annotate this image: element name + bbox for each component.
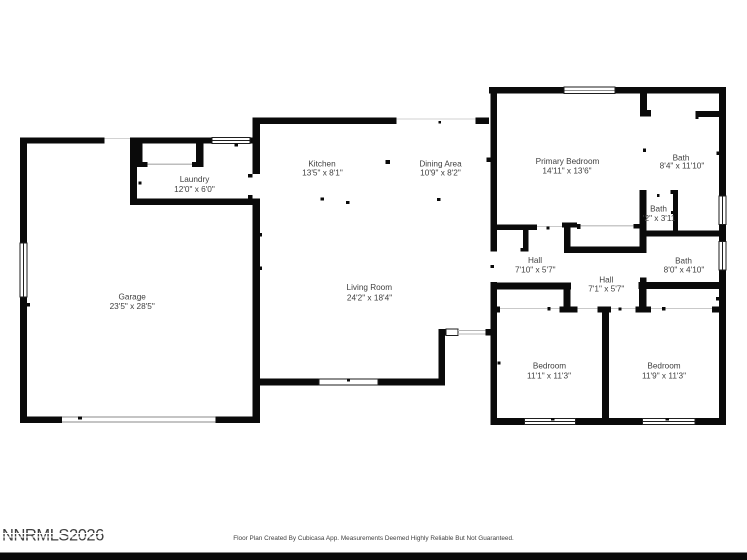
svg-text:Hall: Hall bbox=[599, 276, 613, 285]
svg-text:Primary Bedroom: Primary Bedroom bbox=[536, 157, 600, 166]
svg-text:10'9" x 8'2": 10'9" x 8'2" bbox=[420, 169, 461, 178]
svg-text:14'11" x 13'6": 14'11" x 13'6" bbox=[542, 167, 591, 176]
svg-text:NNRMLS2026: NNRMLS2026 bbox=[2, 527, 104, 545]
svg-text:11'1" x 11'3": 11'1" x 11'3" bbox=[527, 371, 571, 380]
svg-text:Bath: Bath bbox=[650, 204, 667, 213]
svg-text:24'2" x 18'4": 24'2" x 18'4" bbox=[347, 293, 392, 302]
svg-text:Hall: Hall bbox=[528, 256, 542, 265]
svg-text:8'4" x 11'10": 8'4" x 11'10" bbox=[660, 162, 705, 171]
svg-text:Kitchen: Kitchen bbox=[308, 159, 336, 168]
svg-text:7'10" x 5'7": 7'10" x 5'7" bbox=[515, 265, 556, 274]
svg-text:Dining Area: Dining Area bbox=[419, 159, 462, 168]
svg-text:'2" x 3'11: '2" x 3'11 bbox=[643, 214, 676, 223]
svg-text:Floor Plan Created By Cubicasa: Floor Plan Created By Cubicasa App. Meas… bbox=[233, 535, 514, 542]
svg-text:Bedroom: Bedroom bbox=[533, 361, 566, 370]
svg-text:Garage: Garage bbox=[119, 292, 147, 301]
svg-text:Laundry: Laundry bbox=[180, 175, 210, 184]
svg-text:Bath: Bath bbox=[675, 256, 692, 265]
svg-text:23'5" x 28'5": 23'5" x 28'5" bbox=[110, 302, 155, 311]
svg-text:12'0" x 6'0": 12'0" x 6'0" bbox=[174, 185, 215, 194]
svg-text:7'1" x 5'7": 7'1" x 5'7" bbox=[588, 285, 624, 294]
svg-text:13'5" x 8'1": 13'5" x 8'1" bbox=[302, 169, 343, 178]
svg-text:Bedroom: Bedroom bbox=[647, 361, 680, 370]
svg-text:Living Room: Living Room bbox=[347, 283, 393, 292]
svg-text:8'0" x 4'10": 8'0" x 4'10" bbox=[664, 265, 705, 274]
svg-text:11'9" x 11'3": 11'9" x 11'3" bbox=[642, 371, 686, 380]
